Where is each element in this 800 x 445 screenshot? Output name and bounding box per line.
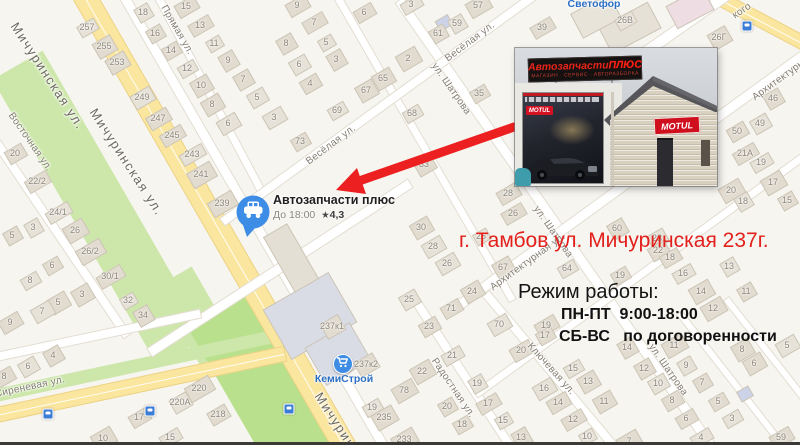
- building-number-label: 22: [417, 366, 427, 376]
- building-number-label: 12: [182, 63, 192, 73]
- building-number-label: 26/2: [81, 246, 99, 256]
- building-number-label: 68: [407, 108, 417, 118]
- building-number-label: 6: [296, 59, 301, 69]
- building-number-label: 237к2: [354, 359, 378, 369]
- building-number-label: 3: [729, 413, 734, 423]
- building-number-label: 57: [473, 0, 483, 10]
- building-number-label: 10: [582, 431, 592, 441]
- building-number-label: 50: [732, 126, 742, 136]
- street-label: Весёлая ул.: [304, 123, 358, 167]
- building-number-label: 18: [738, 196, 748, 206]
- building-number-label: 247: [150, 113, 165, 123]
- pin-label-subtitle: До 18:00 ★4,3: [273, 209, 344, 221]
- building-number-label: 3: [408, 0, 413, 9]
- poi-kemistroy[interactable]: КемиСтрой: [315, 373, 373, 385]
- transit-stop-icon[interactable]: [742, 21, 753, 32]
- building-number-label: 67: [361, 85, 371, 95]
- building-number-label: 5: [254, 92, 259, 102]
- building-number-label: 23: [424, 321, 434, 331]
- building-number-label: 3: [30, 222, 35, 232]
- building-number-label: 9: [683, 360, 688, 370]
- building-number-label: 16: [150, 28, 160, 38]
- pin-rating: 4,3: [330, 209, 345, 221]
- building-number-label: 6: [361, 7, 366, 17]
- building-number-label: 20: [442, 401, 452, 411]
- building-number-label: 8: [209, 99, 214, 109]
- schedule-weekend: СБ-ВС по договоренности: [559, 328, 777, 346]
- building-number-label: 220А: [169, 397, 190, 407]
- building-number-label: 19: [367, 402, 377, 412]
- building-number-label: 7: [311, 17, 316, 27]
- building-number-label: 17: [540, 330, 550, 340]
- transit-stop-icon[interactable]: [43, 409, 54, 420]
- building-number-label: 6: [683, 413, 688, 423]
- address-text: г. Тамбов ул. Мичуринская 237г.: [459, 229, 769, 253]
- building-number-label: 17: [134, 412, 144, 422]
- building-number-label: 12: [639, 363, 649, 373]
- building-number-label: 25: [404, 294, 414, 304]
- building-number-label: 46: [768, 93, 778, 103]
- building-number-label: 19: [615, 270, 625, 280]
- building-number-label: 8: [27, 275, 32, 285]
- building-number-label: 243: [184, 149, 199, 159]
- building-number-label: 30/1: [101, 271, 119, 281]
- building-number-label: 12: [708, 303, 718, 313]
- window: [701, 140, 710, 166]
- building-number-label: 9: [294, 0, 299, 10]
- building-number-label: 6: [225, 118, 230, 128]
- building-number-label: 9: [225, 55, 230, 65]
- building-number-label: 21: [447, 350, 457, 360]
- building-number-label: 6: [25, 361, 30, 371]
- building-number-label: 30: [416, 222, 426, 232]
- building-number-label: 4: [698, 432, 703, 442]
- building-number-label: 70: [494, 319, 504, 329]
- building-number-label: 20: [516, 345, 526, 355]
- building-number-label: 220: [191, 383, 206, 393]
- schedule-weekdays: ПН-ПТ 9:00-18:00: [561, 306, 698, 324]
- building-number-label: 26: [508, 208, 518, 218]
- building-number-label: 22/2: [28, 176, 46, 186]
- building-number-label: 3: [271, 112, 276, 122]
- building-number-label: 14: [553, 397, 563, 407]
- building-number-label: 59: [452, 18, 462, 28]
- building-number-label: 3: [79, 289, 84, 299]
- building-number-label: 241: [193, 169, 208, 179]
- building-number-label: 249: [134, 92, 149, 102]
- building-number-label: 7: [699, 377, 704, 387]
- building-number-label: 18: [457, 419, 467, 429]
- building-number-label: 245: [164, 130, 179, 140]
- motul-sign: MOTUL: [654, 116, 701, 135]
- building-number-label: 255: [96, 41, 111, 51]
- building-number-label: 6: [49, 260, 54, 270]
- building-number-label: 18: [665, 252, 675, 262]
- building-number-label: 4: [50, 350, 55, 360]
- building-number-label: 237к1: [320, 321, 344, 331]
- building-number-label: 73: [295, 136, 305, 146]
- transit-stop-icon[interactable]: [145, 406, 156, 417]
- building-number-label: 18: [138, 7, 148, 17]
- pin-hours: До 18:00: [273, 209, 315, 221]
- building-number-label: 14: [696, 286, 706, 296]
- building-number-label: 69: [332, 105, 342, 115]
- door: [657, 138, 673, 186]
- parked-car: [515, 168, 531, 186]
- building-number-label: 64: [562, 263, 572, 273]
- building-number-label: 7: [39, 306, 44, 316]
- building-number-label: 6: [751, 358, 756, 368]
- building-number-label: 17: [483, 398, 493, 408]
- building-number-label: 13: [724, 261, 734, 271]
- building-number-label: 11: [599, 396, 608, 406]
- pin-label-title[interactable]: Автозапчасти плюс: [273, 193, 395, 207]
- building-number-label: 33: [419, 159, 429, 169]
- cart-icon[interactable]: [333, 354, 353, 374]
- building-number-label: 2: [405, 53, 410, 63]
- building-number-label: 26В: [617, 15, 633, 25]
- building-number-label: 26: [442, 258, 452, 268]
- building-number-label: 5: [323, 37, 328, 47]
- building-number-label: 10: [653, 378, 663, 388]
- building-number-label: 13: [516, 432, 526, 442]
- building-number-label: 19: [541, 320, 551, 330]
- road[interactable]: [324, 0, 515, 302]
- building-number-label: 14: [166, 45, 176, 55]
- building-number-label: 65: [378, 73, 388, 83]
- building-number-label: 16: [539, 383, 549, 393]
- star-icon: ★: [321, 210, 330, 221]
- poi-svetofor[interactable]: Светофор: [568, 0, 621, 10]
- downspout: [611, 92, 614, 186]
- building-number-label: 253: [109, 57, 124, 67]
- building-number-label: 19: [756, 157, 766, 167]
- building-number-label: 15: [498, 415, 508, 425]
- building-number-label: 8: [669, 395, 674, 405]
- building-number-label: 15: [165, 432, 175, 442]
- building-number-label: 20: [726, 185, 736, 195]
- building-number-label: 12: [568, 414, 578, 424]
- storefront-photo: АвтозапчастиПЛЮС МАГАЗИН · СЕРВИС · АВТО…: [515, 48, 717, 186]
- building-number-label: 24: [467, 286, 477, 296]
- building-number-label: 9: [7, 317, 12, 327]
- building-number-label: 15: [568, 363, 578, 373]
- building-number-label: 257: [79, 22, 94, 32]
- building-number-label: 32: [123, 295, 133, 305]
- building-number-label: 26Г: [712, 32, 727, 42]
- building-number-label: 21А: [737, 148, 753, 158]
- building-number-label: 5: [9, 230, 14, 240]
- building-number-label: 39: [537, 22, 547, 32]
- building-number-label: 61: [433, 28, 443, 38]
- building-number-label: 17: [768, 177, 778, 187]
- building-number-label: 235: [376, 412, 391, 422]
- building-number-label: 20: [10, 148, 20, 158]
- building-number-label: 4: [307, 78, 312, 88]
- building-number-label: 8: [1, 371, 6, 381]
- building-number-label: 35: [474, 88, 484, 98]
- building-number-label: 13: [195, 20, 205, 30]
- building-number-label: 5: [784, 340, 789, 350]
- building-number-label: 28: [428, 241, 438, 251]
- building-number-label: 34: [138, 310, 148, 320]
- building-number-label: 13: [583, 376, 593, 386]
- building-number-label: 15: [181, 1, 191, 11]
- building-number-label: 218: [210, 409, 225, 419]
- building-number-label: 15: [782, 195, 792, 205]
- map-canvas[interactable]: 2572552532492472452432412391816141210861…: [0, 0, 800, 445]
- building-number-label: 78: [399, 385, 409, 395]
- building-number-label: 26: [70, 225, 80, 235]
- building-number-label: 5: [715, 396, 720, 406]
- building-number-label: 49: [755, 118, 765, 128]
- building-number-label: 8: [283, 38, 288, 48]
- building-number-label: 239: [214, 198, 229, 208]
- building-number-label: 59: [776, 432, 786, 442]
- building-number-label: 11: [741, 286, 750, 296]
- transit-stop-icon[interactable]: [284, 404, 295, 415]
- schedule-title: Режим работы:: [518, 281, 659, 304]
- building-number-label: 10: [196, 80, 206, 90]
- building-number-label: 3: [333, 54, 338, 64]
- building-number-label: 28: [503, 188, 513, 198]
- building-number-label: 19: [472, 378, 482, 388]
- building-number-label: 24/1: [49, 207, 67, 217]
- building-number-label: 7: [240, 74, 245, 84]
- building-number-label: 11: [209, 38, 218, 48]
- building-number-label: 71: [446, 303, 456, 313]
- building-number-label: 5: [55, 297, 60, 307]
- building-number-label: 16: [678, 268, 688, 278]
